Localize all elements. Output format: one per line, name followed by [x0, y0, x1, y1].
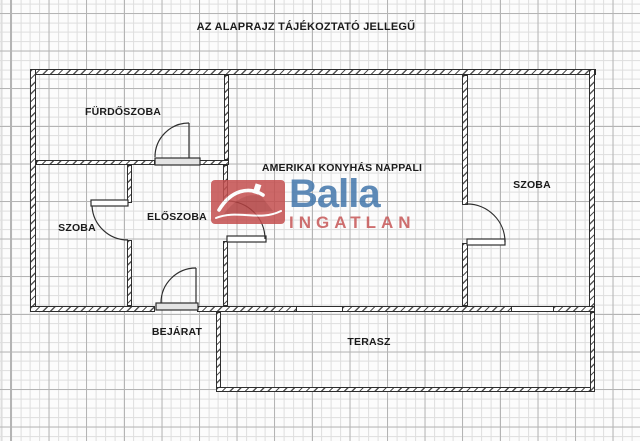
wall-room-right-left-upper	[462, 75, 468, 205]
floor-plan-canvas: AZ ALAPRAJZ TÁJÉKOZTATÓ JELLEGŰ	[0, 0, 640, 441]
room-label-room-right: SZOBA	[513, 179, 551, 191]
door-entrance	[156, 268, 198, 310]
wall-room-right-left-lower	[462, 243, 468, 306]
room-label-bathroom: FÜRDŐSZOBA	[85, 106, 161, 118]
room-label-entrance: BEJÁRAT	[152, 326, 202, 338]
wall-bathroom-right	[224, 75, 229, 160]
wall-outer-top	[30, 69, 596, 75]
wall-outer-bottom-seg1	[30, 306, 155, 312]
wall-outer-bottom-seg4	[553, 306, 595, 312]
wall-terrace-right	[590, 312, 595, 392]
wall-outer-bottom-seg2	[197, 306, 297, 312]
door-bathroom	[155, 123, 200, 165]
window-room-right-terrace	[512, 306, 553, 312]
room-label-hall: ELŐSZOBA	[147, 211, 207, 223]
wall-outer-left	[30, 69, 36, 312]
room-label-terrace: TERASZ	[347, 336, 390, 348]
wall-outer-right	[589, 69, 595, 312]
plan-disclaimer-title: AZ ALAPRAJZ TÁJÉKOZTATÓ JELLEGŰ	[197, 21, 416, 33]
balla-logo-text: Balla INGATLAN	[289, 179, 416, 233]
balla-logo-mark-icon	[211, 179, 285, 224]
wall-outer-bottom-seg3	[342, 306, 512, 312]
wall-bathroom-bottom-left	[36, 160, 155, 165]
balla-ingatlan-logo: Balla INGATLAN	[211, 179, 416, 233]
balla-logo-name: Balla	[289, 179, 416, 210]
room-label-room-left: SZOBA	[58, 222, 96, 234]
door-room-right	[467, 204, 505, 245]
wall-room-left-hall-upper	[127, 165, 132, 203]
door-room-left	[91, 200, 128, 240]
wall-room-left-hall-lower	[127, 240, 132, 306]
wall-hall-right-lower	[223, 241, 228, 306]
wall-terrace-bottom	[216, 387, 595, 392]
wall-terrace-left	[216, 312, 221, 392]
window-living-terrace	[297, 306, 342, 312]
balla-logo-subtitle: INGATLAN	[289, 213, 416, 233]
